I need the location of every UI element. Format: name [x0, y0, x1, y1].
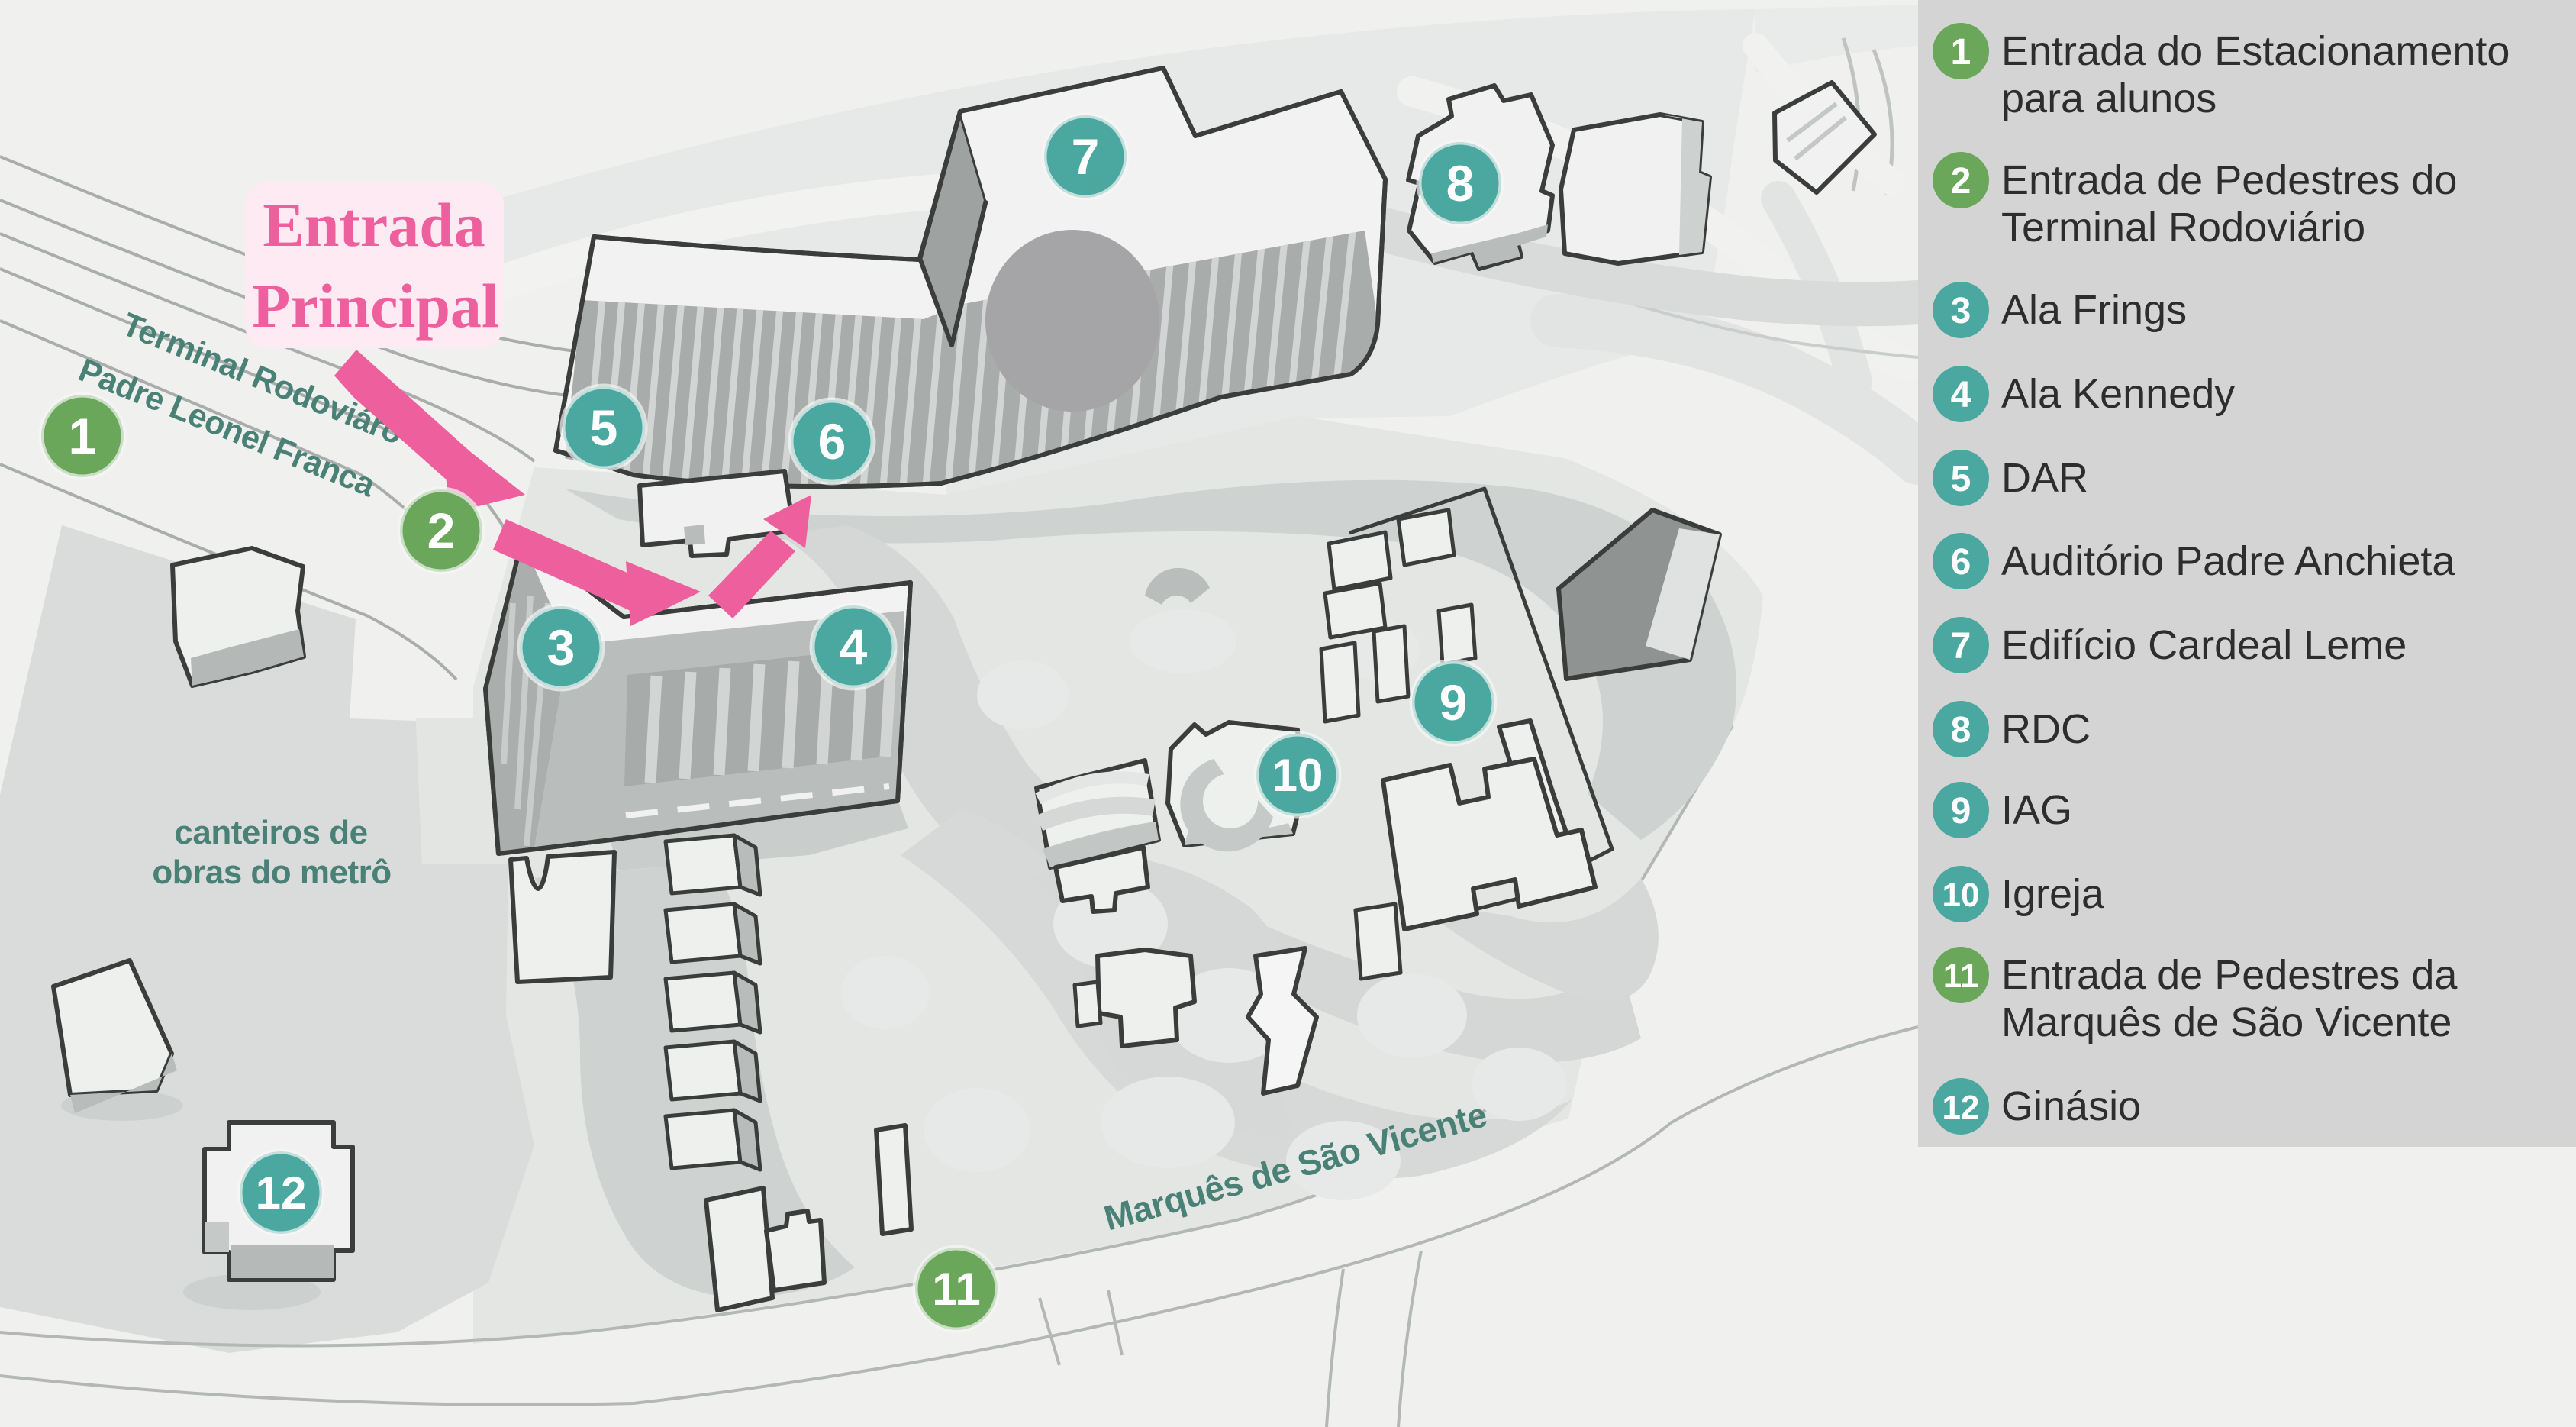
- svg-text:4: 4: [840, 618, 868, 675]
- svg-text:Edifício Cardeal Leme: Edifício Cardeal Leme: [2001, 622, 2407, 668]
- svg-text:obras do metrô: obras do metrô: [152, 854, 391, 891]
- svg-text:1: 1: [1951, 32, 1971, 73]
- svg-text:6: 6: [818, 413, 846, 470]
- svg-text:12: 12: [256, 1167, 307, 1219]
- svg-text:Entrada de Pedestres da: Entrada de Pedestres da: [2001, 952, 2458, 998]
- svg-text:7: 7: [1072, 128, 1100, 185]
- svg-text:11: 11: [1943, 957, 1979, 995]
- svg-text:Entrada: Entrada: [263, 190, 485, 260]
- svg-text:9: 9: [1440, 674, 1468, 731]
- svg-text:Entrada de Pedestres do: Entrada de Pedestres do: [2001, 157, 2457, 203]
- svg-text:Ginásio: Ginásio: [2001, 1083, 2141, 1129]
- svg-text:canteiros de: canteiros de: [174, 814, 367, 851]
- svg-text:DAR: DAR: [2001, 455, 2088, 501]
- svg-text:3: 3: [1951, 291, 1971, 331]
- svg-text:8: 8: [1951, 710, 1971, 751]
- svg-text:7: 7: [1951, 626, 1971, 667]
- svg-text:10: 10: [1942, 877, 1980, 914]
- svg-text:para alunos: para alunos: [2001, 76, 2217, 121]
- svg-text:Entrada do Estacionamento: Entrada do Estacionamento: [2001, 28, 2510, 74]
- svg-text:RDC: RDC: [2001, 706, 2091, 752]
- svg-text:Principal: Principal: [252, 271, 498, 341]
- svg-text:1: 1: [69, 408, 97, 464]
- svg-text:11: 11: [932, 1264, 980, 1315]
- svg-text:Ala Kennedy: Ala Kennedy: [2001, 371, 2235, 417]
- svg-text:Auditório Padre Anchieta: Auditório Padre Anchieta: [2001, 538, 2455, 584]
- svg-text:4: 4: [1951, 375, 1971, 415]
- svg-text:5: 5: [590, 399, 618, 456]
- svg-text:3: 3: [547, 619, 575, 676]
- svg-text:10: 10: [1272, 750, 1323, 801]
- svg-text:Ala Frings: Ala Frings: [2001, 287, 2187, 333]
- svg-text:2: 2: [1951, 161, 1971, 202]
- svg-text:9: 9: [1951, 791, 1971, 831]
- svg-text:12: 12: [1942, 1089, 1980, 1126]
- svg-text:IAG: IAG: [2001, 787, 2072, 833]
- svg-text:Marquês de São Vicente: Marquês de São Vicente: [2001, 999, 2452, 1045]
- svg-text:Terminal Rodoviário: Terminal Rodoviário: [2001, 205, 2365, 250]
- svg-text:2: 2: [427, 502, 456, 559]
- svg-text:5: 5: [1951, 459, 1971, 499]
- svg-text:6: 6: [1951, 542, 1971, 583]
- svg-text:8: 8: [1446, 155, 1475, 211]
- svg-text:Igreja: Igreja: [2001, 871, 2105, 917]
